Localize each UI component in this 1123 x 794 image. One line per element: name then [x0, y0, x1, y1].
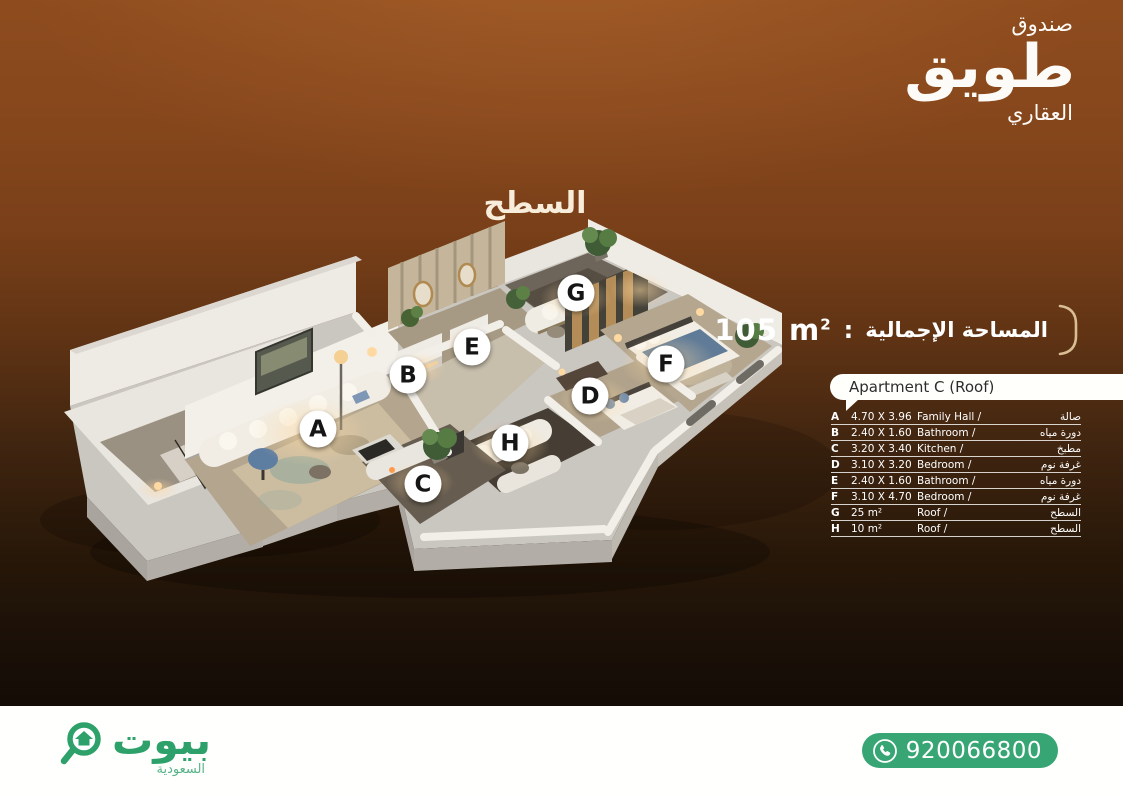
area-bracket-icon	[1058, 303, 1080, 357]
room-marker-h: H	[492, 425, 529, 462]
row-letter: E	[831, 475, 851, 487]
row-name-en: Kitchen /	[917, 443, 1057, 455]
row-letter: A	[831, 411, 851, 423]
phone-icon	[872, 738, 898, 764]
footer-band: بيوت السعودية 920066800	[0, 706, 1123, 794]
bayut-logo-text: بيوت السعودية	[112, 720, 211, 776]
room-marker-a: A	[300, 411, 337, 448]
row-dimensions: 3.10 X 3.20	[851, 459, 917, 471]
table-row: F3.10 X 4.70Bedroom /غرفة نوم	[831, 489, 1081, 505]
row-name-en: Roof /	[917, 507, 1050, 519]
table-row: B2.40 X 1.60Bathroom /دورة مياه	[831, 425, 1081, 441]
row-name-en: Bathroom /	[917, 475, 1040, 487]
apartment-header-tab: Apartment C (Roof)	[830, 374, 1123, 400]
room-marker-d: D	[572, 378, 609, 415]
brochure-page: صندوق طويق العقاري السطح	[0, 0, 1123, 794]
row-dimensions: 25 m²	[851, 507, 917, 519]
row-name-en: Bedroom /	[917, 459, 1041, 471]
room-marker-c: C	[405, 466, 442, 503]
row-letter: F	[831, 491, 851, 503]
row-name-en: Bathroom /	[917, 427, 1040, 439]
row-name-ar: مطبخ	[1057, 443, 1081, 455]
row-dimensions: 3.20 X 3.40	[851, 443, 917, 455]
bayut-subtitle: السعودية	[157, 763, 206, 776]
apartment-table: A4.70 X 3.96Family Hall /صالةB2.40 X 1.6…	[831, 409, 1081, 537]
room-marker-g: G	[558, 275, 595, 312]
phone-number: 920066800	[906, 738, 1042, 764]
room-marker-e: E	[454, 329, 491, 366]
row-dimensions: 2.40 X 1.60	[851, 475, 917, 487]
phone-pill[interactable]: 920066800	[862, 733, 1058, 768]
apartment-header-label: Apartment C (Roof)	[849, 378, 994, 396]
row-dimensions: 3.10 X 4.70	[851, 491, 917, 503]
table-row: G25 m²Roof /السطح	[831, 505, 1081, 521]
total-area-label: المساحة الإجمالية	[865, 318, 1048, 342]
row-name-ar: السطح	[1050, 507, 1081, 519]
row-name-ar: غرفة نوم	[1041, 459, 1081, 471]
row-dimensions: 10 m²	[851, 523, 917, 535]
row-name-ar: دورة مياه	[1040, 427, 1081, 439]
row-name-en: Family Hall /	[917, 411, 1060, 423]
row-letter: H	[831, 523, 851, 535]
row-dimensions: 4.70 X 3.96	[851, 411, 917, 423]
row-letter: B	[831, 427, 851, 439]
row-letter: C	[831, 443, 851, 455]
row-letter: G	[831, 507, 851, 519]
table-row: C3.20 X 3.40Kitchen /مطبخ	[831, 441, 1081, 457]
row-name-ar: صالة	[1060, 411, 1081, 423]
room-marker-f: F	[648, 346, 685, 383]
total-area-line: 105 m2 : المساحة الإجمالية	[714, 303, 1080, 357]
row-name-en: Roof /	[917, 523, 1050, 535]
total-area-colon: :	[844, 316, 854, 344]
row-dimensions: 2.40 X 1.60	[851, 427, 917, 439]
row-name-ar: غرفة نوم	[1041, 491, 1081, 503]
room-marker-b: B	[390, 357, 427, 394]
row-name-ar: السطح	[1050, 523, 1081, 535]
bayut-name: بيوت	[112, 720, 211, 761]
table-row: A4.70 X 3.96Family Hall /صالة	[831, 409, 1081, 425]
row-letter: D	[831, 459, 851, 471]
row-name-en: Bedroom /	[917, 491, 1041, 503]
bayut-logo: بيوت السعودية	[58, 720, 211, 776]
row-name-ar: دورة مياه	[1040, 475, 1081, 487]
table-row: D3.10 X 3.20Bedroom /غرفة نوم	[831, 457, 1081, 473]
total-area-value: 105 m2	[714, 313, 831, 347]
table-row: H10 m²Roof /السطح	[831, 521, 1081, 537]
magnifier-house-icon	[58, 720, 106, 772]
table-row: E2.40 X 1.60Bathroom /دورة مياه	[831, 473, 1081, 489]
